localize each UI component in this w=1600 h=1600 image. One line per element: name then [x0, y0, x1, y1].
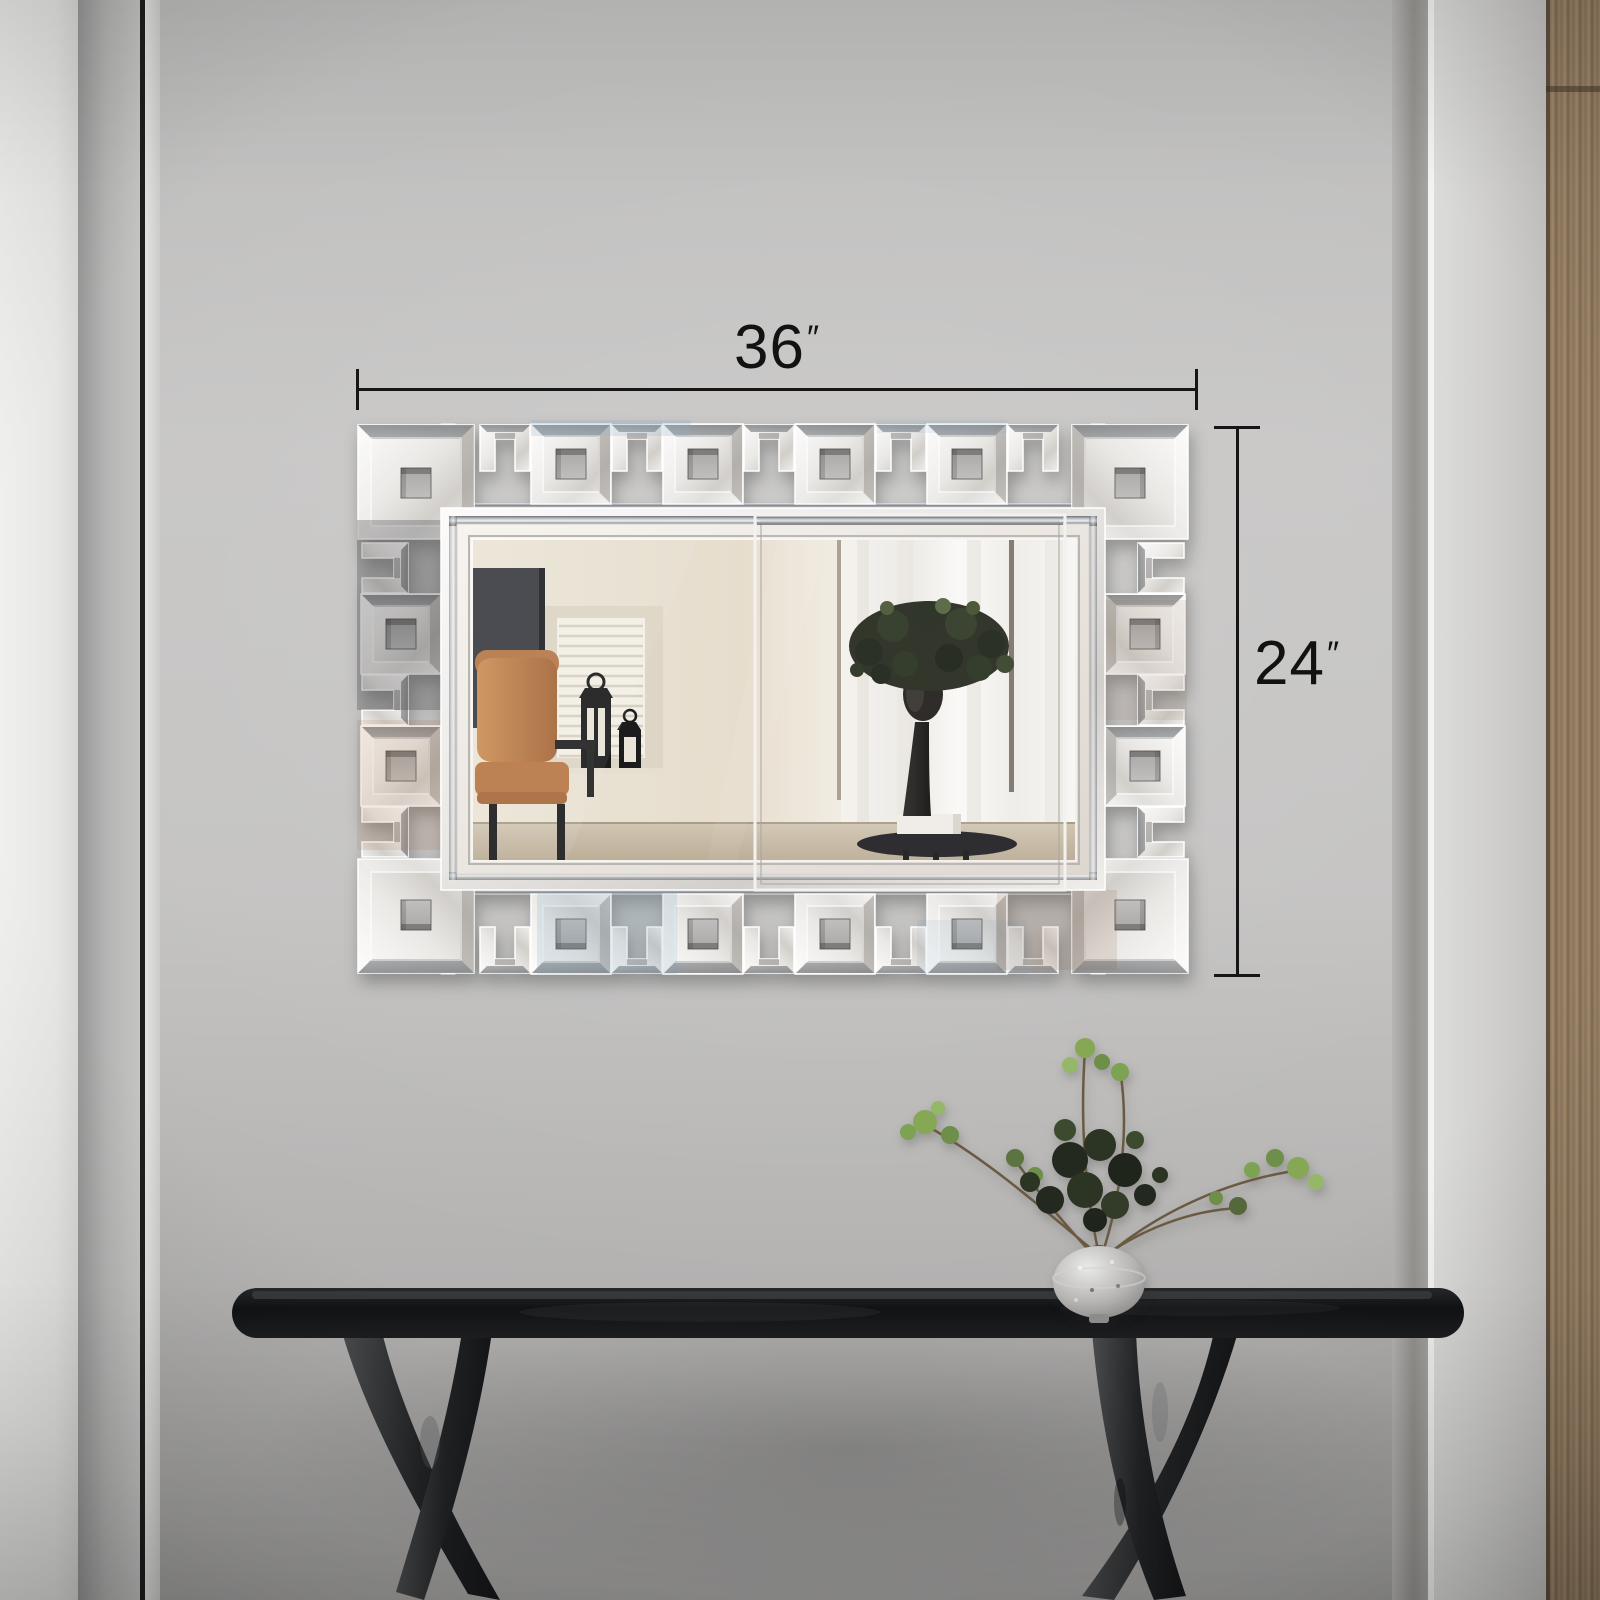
dimension-height-label: 24″ [1254, 628, 1340, 699]
dimension-width-label: 36″ [357, 312, 1197, 383]
wood-trim-seam [1546, 86, 1600, 92]
dimension-height-tick-top [1214, 426, 1260, 429]
dimension-height-line [1236, 428, 1239, 977]
dimension-width-line [357, 388, 1197, 391]
dimension-height-tick-bottom [1214, 974, 1260, 977]
front-mirror-panel [755, 515, 1065, 890]
vase [1053, 1245, 1145, 1323]
plant-foliage [900, 1038, 1324, 1232]
greek-key-wall-mirror [357, 420, 1189, 978]
product-photo-stage: 36″ 24″ [0, 0, 1600, 1600]
vase-with-plant [880, 1010, 1360, 1340]
console-table [0, 1272, 1600, 1600]
